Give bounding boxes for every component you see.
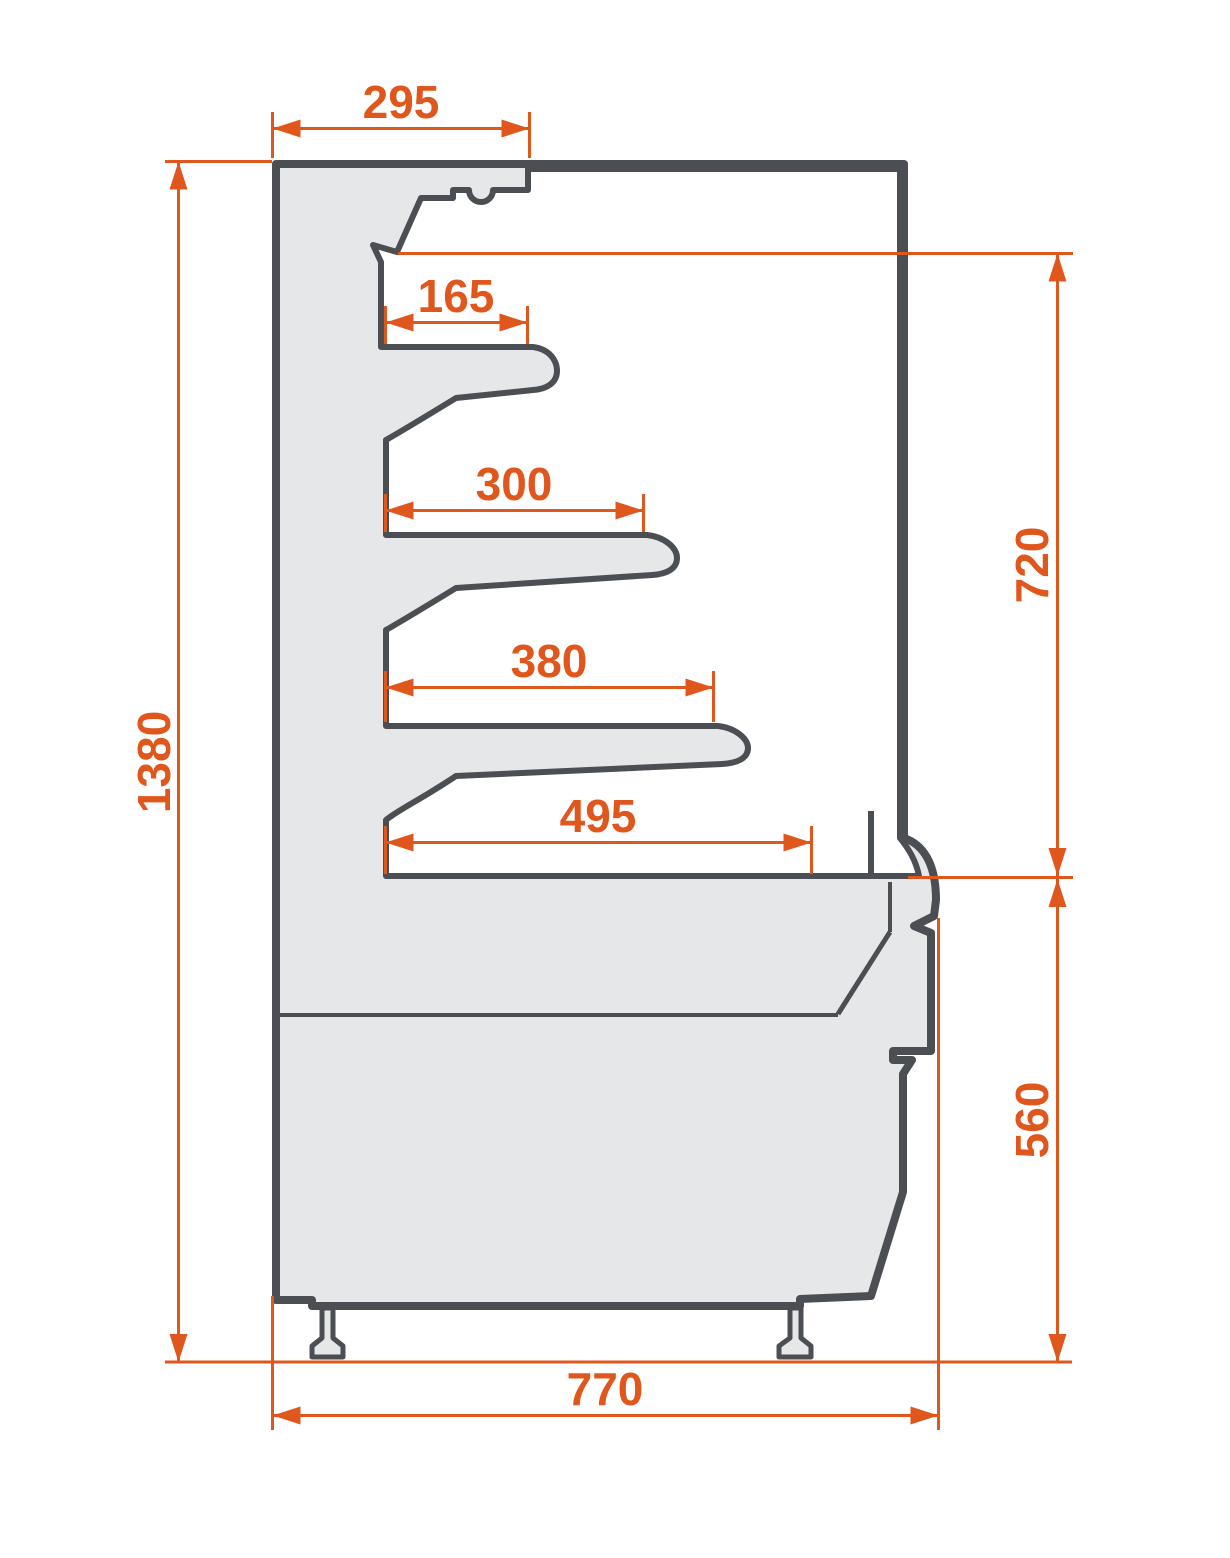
dim-label-opening-height: 720 [1006, 527, 1058, 604]
dim-overall-height: 1380 [128, 162, 272, 1363]
arrowhead-left [273, 1407, 301, 1425]
arrowhead-left [273, 120, 301, 138]
dim-label-shelf-2-depth: 300 [476, 458, 553, 510]
dim-label-shelf-3-depth: 380 [511, 635, 588, 687]
drawing-page: 295 165 300 380 [0, 0, 1230, 1558]
arrowhead-down [170, 1334, 188, 1362]
arrowhead-down [1049, 848, 1067, 876]
arrowhead-right [502, 120, 530, 138]
dim-label-base-shelf-depth: 495 [560, 790, 637, 842]
arrowhead-up [1049, 254, 1067, 282]
front-foot [779, 1308, 811, 1357]
rear-foot [312, 1308, 343, 1357]
arrowhead-right [911, 1407, 939, 1425]
dim-label-overall-depth: 770 [567, 1363, 644, 1415]
dim-label-top-depth: 295 [363, 76, 440, 128]
cabinet-profile [276, 164, 936, 1357]
arrowhead-up [170, 162, 188, 190]
dim-label-base-height: 560 [1006, 1082, 1058, 1159]
dim-label-shelf-1-depth: 165 [418, 270, 495, 322]
side-section-drawing: 295 165 300 380 [0, 0, 1230, 1558]
dim-label-overall-height: 1380 [128, 711, 180, 813]
arrowhead-down [1049, 1334, 1067, 1362]
arrowhead-up [1049, 879, 1067, 907]
dim-top-depth: 295 [273, 76, 530, 158]
